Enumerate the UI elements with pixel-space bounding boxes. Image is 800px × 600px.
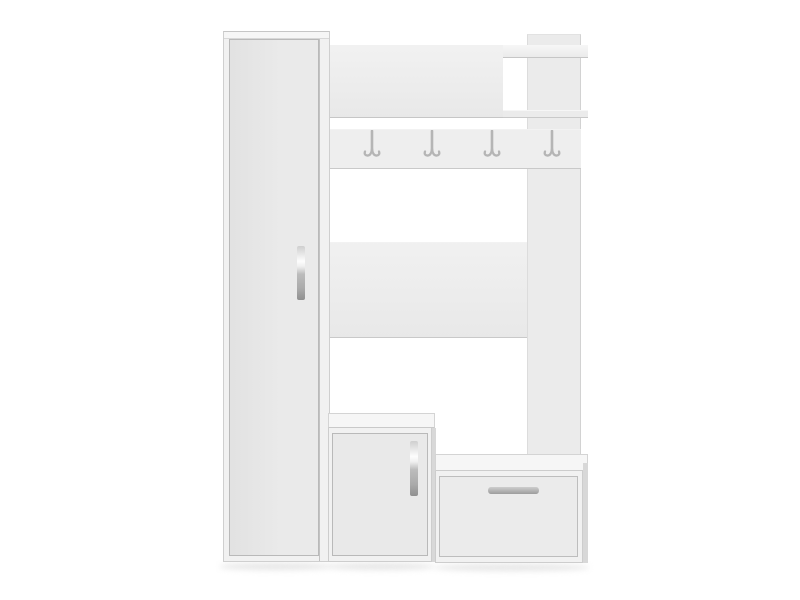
wardrobe-handle (297, 246, 305, 300)
cubby-top-board (503, 45, 588, 58)
floor-shadow (219, 563, 333, 570)
floor-shadow (327, 563, 435, 570)
wardrobe-door (229, 39, 319, 556)
shoe-cabinet (328, 413, 436, 562)
bench-side-face (583, 463, 588, 563)
bench-top-face (435, 454, 588, 471)
wardrobe-cabinet (223, 31, 330, 562)
shoe-cabinet-handle (410, 441, 418, 496)
coat-hook-shape (425, 131, 440, 156)
coat-hook (421, 130, 443, 168)
coat-hook (481, 130, 503, 168)
top-shelf-panel (329, 45, 503, 118)
bench-handle (488, 487, 539, 494)
coat-hook-shape (545, 131, 560, 156)
cubby-bottom-board (503, 110, 588, 118)
coat-hook (541, 130, 563, 168)
coat-hook (361, 130, 383, 168)
wardrobe-top-face (224, 32, 329, 39)
product-photo (0, 0, 800, 600)
bench-drawer (439, 476, 578, 557)
floor-shadow (433, 564, 590, 571)
shoe-cabinet-top-face (328, 413, 435, 428)
coat-hook-shape (485, 131, 500, 156)
storage-bench (435, 454, 588, 563)
coat-hook-shape (365, 131, 380, 156)
right-upright-panel (527, 34, 581, 455)
